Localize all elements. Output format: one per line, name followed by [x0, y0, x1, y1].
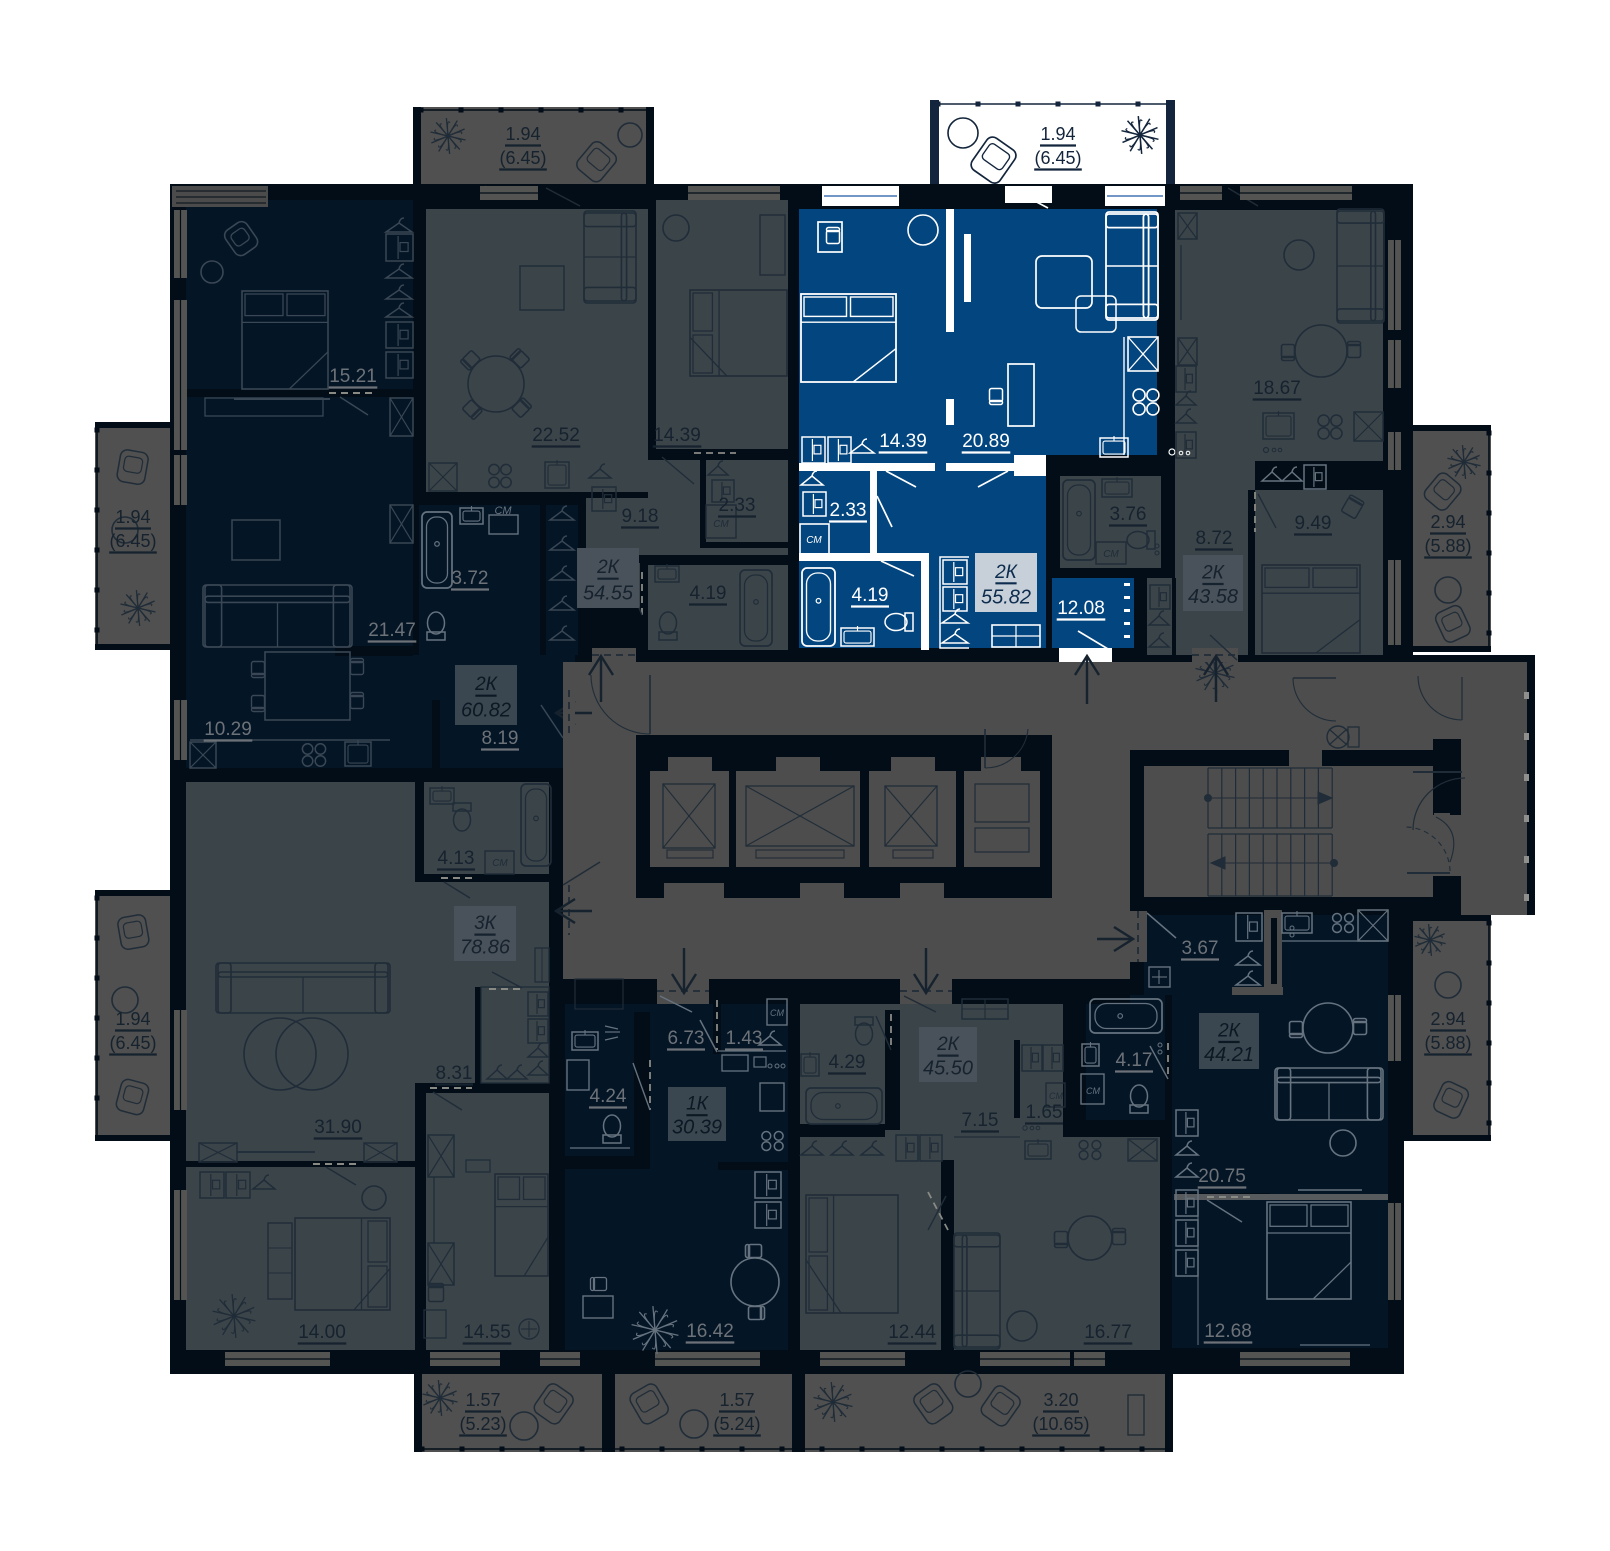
svg-text:15.21: 15.21: [329, 366, 377, 387]
svg-text:18.67: 18.67: [1253, 378, 1301, 399]
svg-text:2К: 2К: [1201, 563, 1226, 584]
svg-text:СМ: СМ: [1086, 1086, 1100, 1096]
svg-text:2К: 2К: [994, 562, 1019, 583]
svg-text:2.94: 2.94: [1430, 1009, 1465, 1029]
svg-text:(5.88): (5.88): [1424, 1033, 1471, 1053]
svg-text:16.42: 16.42: [686, 1321, 734, 1342]
svg-text:30.39: 30.39: [672, 1116, 722, 1138]
svg-text:1.94: 1.94: [505, 124, 540, 144]
svg-text:14.39: 14.39: [653, 425, 701, 446]
svg-text:4.13: 4.13: [438, 848, 475, 869]
svg-text:2К: 2К: [474, 674, 499, 695]
svg-text:9.49: 9.49: [1295, 513, 1332, 534]
svg-text:6.73: 6.73: [668, 1028, 705, 1049]
svg-text:1.65: 1.65: [1026, 1102, 1063, 1123]
svg-text:78.86: 78.86: [460, 936, 511, 958]
svg-text:2К: 2К: [596, 557, 621, 578]
svg-text:31.90: 31.90: [314, 1117, 362, 1138]
svg-text:14.00: 14.00: [298, 1322, 346, 1343]
svg-text:20.75: 20.75: [1198, 1166, 1246, 1187]
svg-text:8.31: 8.31: [436, 1063, 473, 1084]
svg-text:12.44: 12.44: [888, 1322, 936, 1343]
svg-text:43.58: 43.58: [1188, 586, 1238, 608]
svg-text:(5.24): (5.24): [713, 1414, 760, 1434]
svg-text:3.20: 3.20: [1043, 1390, 1078, 1410]
svg-text:3.72: 3.72: [452, 568, 489, 589]
svg-text:8.72: 8.72: [1196, 528, 1233, 549]
svg-text:12.08: 12.08: [1057, 598, 1105, 619]
svg-text:1.57: 1.57: [465, 1390, 500, 1410]
svg-text:45.50: 45.50: [923, 1057, 973, 1079]
svg-text:22.52: 22.52: [532, 425, 580, 446]
svg-text:(5.23): (5.23): [459, 1414, 506, 1434]
svg-text:СМ: СМ: [495, 505, 513, 517]
svg-text:3К: 3К: [474, 913, 498, 934]
svg-text:12.68: 12.68: [1204, 1321, 1252, 1342]
svg-text:1.94: 1.94: [115, 1009, 150, 1029]
svg-text:21.47: 21.47: [368, 620, 416, 641]
svg-text:4.24: 4.24: [590, 1086, 627, 1107]
svg-text:СМ: СМ: [1103, 549, 1119, 560]
svg-text:7.15: 7.15: [962, 1110, 999, 1131]
svg-text:1.94: 1.94: [115, 507, 150, 527]
svg-text:2К: 2К: [936, 1034, 961, 1055]
svg-text:55.82: 55.82: [981, 587, 1031, 609]
svg-text:4.19: 4.19: [690, 583, 727, 604]
svg-text:2К: 2К: [1217, 1021, 1242, 1042]
svg-text:14.55: 14.55: [463, 1322, 511, 1343]
svg-text:54.55: 54.55: [583, 583, 634, 605]
svg-text:(5.88): (5.88): [1424, 536, 1471, 556]
svg-text:(6.45): (6.45): [109, 531, 156, 551]
svg-text:СМ: СМ: [770, 1008, 784, 1018]
svg-text:1.43: 1.43: [726, 1028, 763, 1049]
svg-text:СМ: СМ: [492, 858, 508, 869]
svg-text:(6.45): (6.45): [109, 1033, 156, 1053]
svg-text:СМ: СМ: [806, 535, 822, 546]
svg-text:14.39: 14.39: [879, 431, 927, 452]
svg-text:2.33: 2.33: [830, 500, 867, 521]
svg-text:1К: 1К: [686, 1094, 710, 1115]
svg-text:20.89: 20.89: [962, 431, 1010, 452]
svg-text:3.67: 3.67: [1182, 938, 1219, 959]
svg-text:(10.65): (10.65): [1032, 1414, 1089, 1434]
svg-text:(6.45): (6.45): [499, 148, 546, 168]
svg-text:(6.45): (6.45): [1034, 148, 1081, 168]
svg-text:1.57: 1.57: [719, 1390, 754, 1410]
svg-text:10.29: 10.29: [204, 719, 252, 740]
svg-text:9.18: 9.18: [622, 506, 659, 527]
svg-text:16.77: 16.77: [1084, 1322, 1132, 1343]
svg-text:2.94: 2.94: [1430, 512, 1465, 532]
svg-text:СМ: СМ: [1049, 1091, 1063, 1101]
svg-text:2.33: 2.33: [719, 495, 756, 516]
svg-text:60.82: 60.82: [461, 700, 511, 722]
svg-text:4.29: 4.29: [829, 1052, 866, 1073]
svg-text:4.19: 4.19: [852, 585, 889, 606]
svg-text:СМ: СМ: [713, 519, 729, 530]
svg-text:3.76: 3.76: [1110, 504, 1147, 525]
svg-text:4.17: 4.17: [1116, 1050, 1153, 1071]
svg-text:8.19: 8.19: [482, 728, 519, 749]
svg-text:44.21: 44.21: [1204, 1044, 1254, 1066]
svg-text:1.94: 1.94: [1040, 124, 1075, 144]
